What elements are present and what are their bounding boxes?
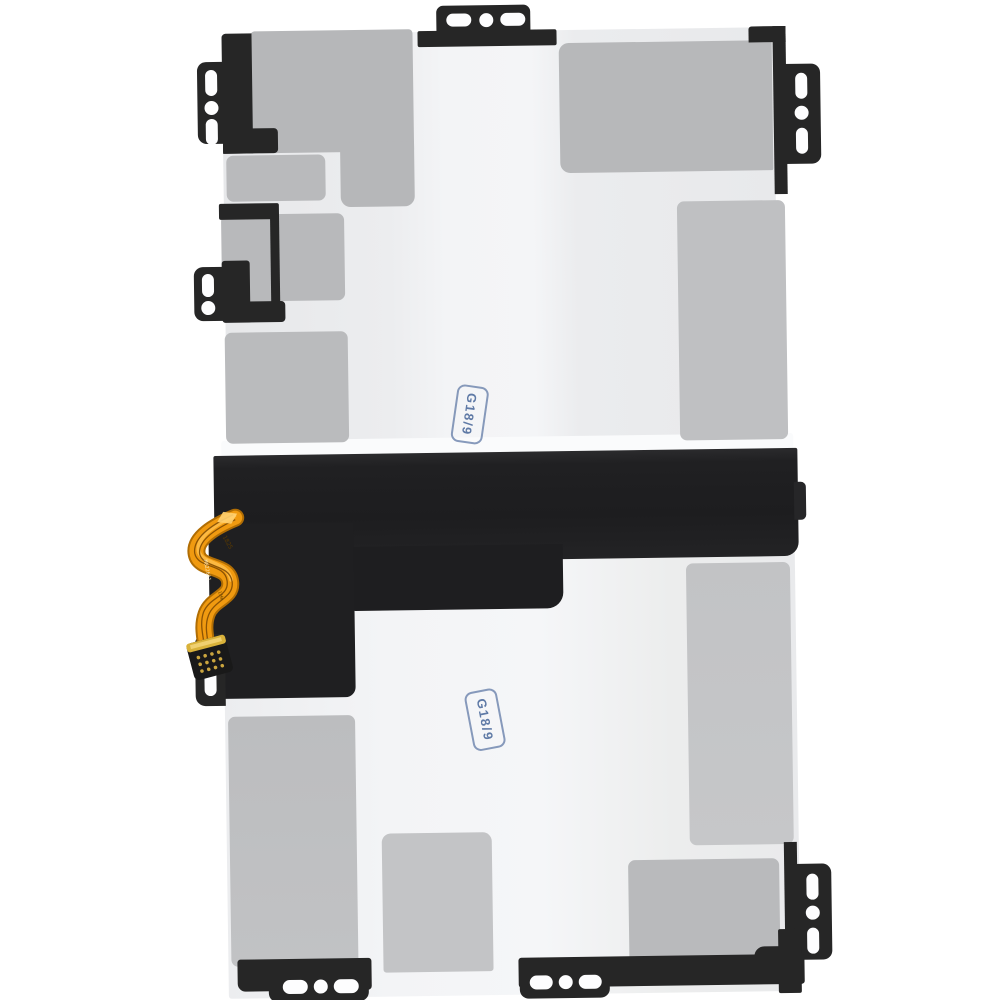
frame-bottom-tab-right: [520, 965, 610, 999]
product-photo-battery: 1825 M8226A1 LH⊕ G18/9 G18/9: [0, 0, 1000, 1000]
adhesive-pad-top-right: [559, 40, 774, 173]
frame-left-tab-top: [197, 62, 230, 144]
frame-left-seam-line: [270, 215, 280, 311]
adhesive-pad-left-lower: [225, 331, 350, 444]
adhesive-pad-top-left-leg: [340, 141, 415, 207]
flex-connector: [186, 634, 234, 681]
qc-stamp-lower-label: G18/9: [474, 697, 497, 742]
frame-left-tab-mid: [194, 267, 225, 321]
adhesive-pad-bottom-center: [382, 832, 494, 973]
flex-marking-top: 1825: [221, 534, 234, 550]
battery-assembly: 1825 M8226A1 LH⊕ G18/9 G18/9: [0, 0, 1000, 1000]
frame-right-tab-top: [782, 63, 821, 164]
adhesive-pad-right-lower: [686, 562, 794, 845]
frame-bottom-right-corner-foot: [754, 946, 801, 971]
adhesive-pad-bottom-left: [228, 715, 358, 967]
flex-cable: 1825 M8226A1 LH⊕: [165, 503, 278, 685]
spacer-band-right-bump: [794, 482, 807, 520]
adhesive-pad-right-mid: [677, 200, 788, 440]
adhesive-pad-left-small: [226, 154, 326, 201]
frame-left-corner-foot: [223, 128, 278, 154]
frame-top-bar: [417, 29, 556, 47]
spacer-band-mid-step: [351, 544, 564, 611]
frame-left-bracket-foot: [246, 301, 285, 323]
qc-stamp-upper-label: G18/9: [459, 392, 480, 437]
frame-bottom-tab-left: [269, 968, 369, 1000]
